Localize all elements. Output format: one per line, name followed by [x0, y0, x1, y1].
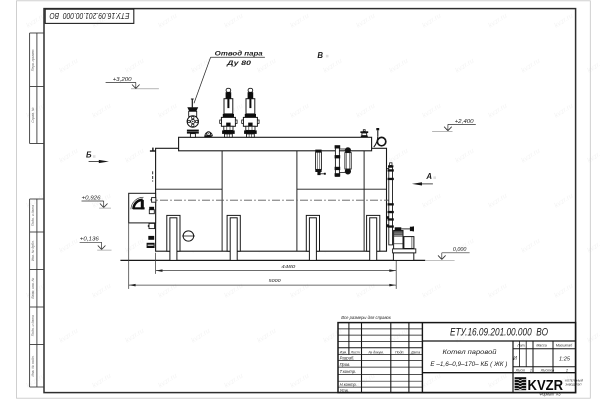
svg-text:Лист: Лист: [515, 369, 526, 373]
svg-text:Е –1,6–0,9–170– КБ ( ЖК ): Е –1,6–0,9–170– КБ ( ЖК ): [430, 361, 507, 368]
svg-text:Все размеры для справок: Все размеры для справок: [341, 315, 391, 321]
svg-text:Подп.: Подп.: [395, 351, 404, 355]
svg-text:1:25: 1:25: [559, 357, 571, 363]
svg-text:Т.контр.: Т.контр.: [340, 369, 357, 374]
svg-text:Дата: Дата: [410, 351, 420, 355]
svg-text:Пров.: Пров.: [340, 362, 351, 367]
svg-text:№ докум.: № докум.: [368, 351, 383, 355]
svg-text:Ду 80: Ду 80: [226, 60, 252, 67]
svg-text:Перв. примен.: Перв. примен.: [31, 49, 35, 72]
svg-text:Разраб.: Разраб.: [340, 356, 355, 361]
svg-text:Листов: Листов: [540, 369, 555, 373]
svg-text:Справ. №: Справ. №: [31, 107, 35, 123]
svg-text:Инв. № дубл.: Инв. № дубл.: [31, 240, 35, 261]
svg-text:+0,926: +0,926: [82, 195, 101, 201]
svg-text:Взам. инв. №: Взам. инв. №: [31, 277, 35, 298]
svg-text:4480: 4480: [281, 264, 296, 269]
svg-text:ЕТУ.16.09.201.00.000 ВО: ЕТУ.16.09.201.00.000 ВО: [450, 327, 548, 339]
svg-text:2: 2: [565, 369, 568, 373]
svg-text:0,000: 0,000: [453, 247, 467, 253]
svg-text:Котел паровой: Котел паровой: [443, 348, 497, 356]
svg-text:Масса: Масса: [536, 343, 546, 347]
svg-text:Н.контр.: Н.контр.: [340, 382, 357, 387]
svg-text:И: И: [513, 356, 517, 362]
svg-text:Инв. № подл.: Инв. № подл.: [31, 355, 35, 376]
svg-text:5000: 5000: [269, 278, 281, 283]
svg-text:+2,400: +2,400: [455, 119, 474, 125]
svg-text:ЕТУ.16.09.201.00.000 ВО: ЕТУ.16.09.201.00.000 ВО: [49, 11, 129, 21]
svg-text:Утв.: Утв.: [340, 388, 349, 393]
svg-text:Лист: Лист: [350, 351, 360, 355]
svg-text:+0,136: +0,136: [80, 237, 99, 243]
svg-text:Масштаб: Масштаб: [556, 344, 573, 348]
svg-text:Изм.: Изм.: [340, 351, 347, 355]
svg-text:Лит.: Лит.: [516, 343, 525, 347]
svg-text:1: 1: [530, 369, 532, 373]
svg-text:+3,200: +3,200: [113, 77, 132, 83]
svg-text:Формат А3: Формат А3: [540, 391, 561, 396]
svg-text:Подп. и дата: Подп. и дата: [31, 205, 35, 226]
svg-text:Подп. и дата: Подп. и дата: [31, 315, 35, 336]
svg-text:В: В: [317, 51, 323, 60]
svg-text:А: А: [425, 172, 432, 181]
svg-text:Отвод пара: Отвод пара: [215, 50, 263, 58]
svg-text:Б: Б: [86, 151, 92, 160]
svg-text:ЗАВОД РЭП: ЗАВОД РЭП: [565, 383, 582, 387]
